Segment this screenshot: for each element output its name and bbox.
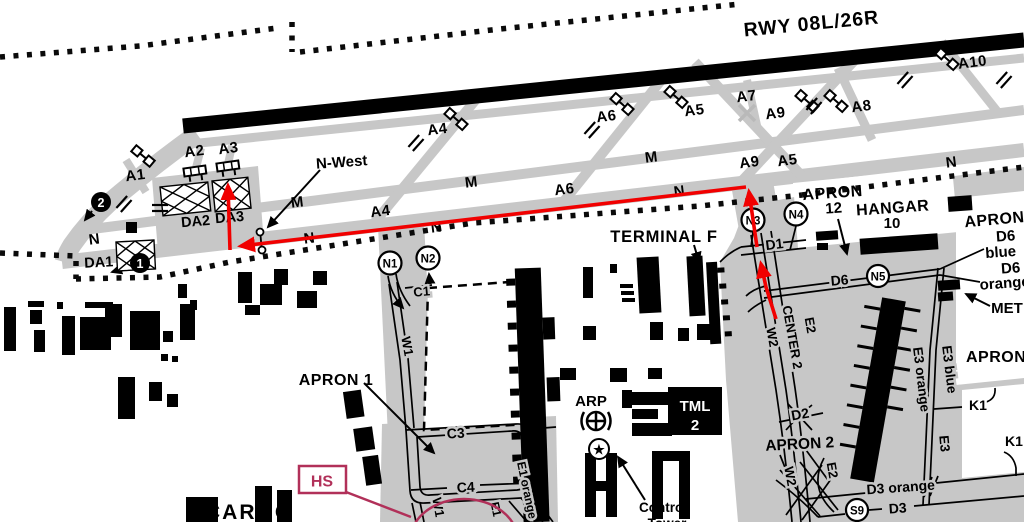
building xyxy=(362,455,382,486)
building xyxy=(260,284,282,305)
taxiway-label-n: N xyxy=(945,153,958,171)
taxiway-label-a1: A1 xyxy=(124,166,146,185)
taxiway-label-n: N xyxy=(88,230,101,248)
building xyxy=(610,368,627,382)
building xyxy=(161,354,168,361)
building xyxy=(583,267,593,298)
hold-bars-icon xyxy=(996,72,1011,88)
building xyxy=(297,291,317,308)
runway-label: RWY 08L/26R xyxy=(743,7,880,42)
building xyxy=(245,305,260,315)
node-n2: N2 xyxy=(417,247,440,270)
building xyxy=(30,310,42,324)
svg-text:1: 1 xyxy=(137,257,144,271)
control-tower-pointer xyxy=(618,457,645,500)
building xyxy=(948,195,973,212)
taxiway-label-a4-south: A4 xyxy=(369,202,391,221)
taxiway-label-a3: A3 xyxy=(217,139,239,158)
n-west-label: N-West xyxy=(315,152,367,173)
building xyxy=(697,324,711,340)
chart-canvas: N1 N2 N3 N4 N5 S9 1 2 ★ RWY 08L/26R A10 … xyxy=(0,0,1024,522)
building xyxy=(62,316,75,355)
node-n1: N1 xyxy=(379,252,402,275)
d6-orange-word: orange xyxy=(979,273,1024,293)
building xyxy=(620,284,633,288)
met-label: MET xyxy=(991,300,1023,317)
taxiway-label-a7: A7 xyxy=(735,87,757,106)
taxiway-label-a5-south: A5 xyxy=(776,151,798,170)
control-tower-label-2: Tower xyxy=(648,516,687,522)
svg-text:N1: N1 xyxy=(383,259,398,271)
airport-taxi-chart: N1 N2 N3 N4 N5 S9 1 2 ★ RWY 08L/26R A10 … xyxy=(0,0,1024,522)
taxiway-label-a4: A4 xyxy=(426,120,448,139)
apron-right-label: APRON xyxy=(966,349,1024,366)
building xyxy=(163,331,173,342)
building xyxy=(585,481,617,491)
apron-1-label: APRON 1 xyxy=(299,372,374,389)
taxiway-label-a10: A10 xyxy=(957,52,988,72)
building xyxy=(313,271,327,285)
taxiway-label-a6: A6 xyxy=(595,107,617,126)
tml-2-number: 2 xyxy=(691,417,699,434)
d1-label: D1 xyxy=(765,235,785,253)
deice-pad-da3-icon xyxy=(212,177,251,212)
building xyxy=(817,243,828,250)
taxiway-label-m: M xyxy=(464,173,479,191)
taxiway-label-m: M xyxy=(290,193,305,211)
k1-label: K1 xyxy=(969,397,987,413)
building xyxy=(650,322,663,340)
building xyxy=(560,368,576,380)
building xyxy=(149,382,162,401)
note-1-badge: 1 xyxy=(130,253,150,273)
building xyxy=(118,377,135,419)
terminal-f-building xyxy=(686,256,705,317)
e2-label: E2 xyxy=(824,461,842,479)
building xyxy=(4,307,16,351)
taxiway-label-m: M xyxy=(644,148,659,166)
building xyxy=(816,230,839,241)
apron-12-number: 12 xyxy=(825,199,843,217)
hold-position-icon xyxy=(824,90,847,112)
building xyxy=(167,394,178,407)
building xyxy=(621,291,634,295)
c3-label: C3 xyxy=(446,425,465,442)
building xyxy=(652,451,690,461)
building xyxy=(343,390,365,419)
building xyxy=(238,272,252,303)
building xyxy=(632,409,658,419)
svg-text:N2: N2 xyxy=(421,254,436,266)
control-tower-icon: ★ xyxy=(589,439,609,459)
c4-label: C4 xyxy=(456,479,475,496)
building xyxy=(632,392,672,405)
svg-text:2: 2 xyxy=(98,196,105,210)
taxiway-label-a9-south: A9 xyxy=(738,153,760,172)
building xyxy=(28,301,44,307)
svg-text:N4: N4 xyxy=(789,210,804,222)
c1-label: C1 xyxy=(413,283,431,299)
building xyxy=(57,302,63,309)
node-s9: S9 xyxy=(846,499,868,521)
building xyxy=(622,298,635,302)
hold-bars-icon xyxy=(408,135,423,151)
building xyxy=(678,328,689,341)
e2-label: E2 xyxy=(802,316,820,334)
building xyxy=(637,256,662,313)
arp-icon xyxy=(582,412,611,430)
building xyxy=(190,300,197,310)
taxiway-label-a5: A5 xyxy=(683,101,705,120)
building xyxy=(610,264,617,273)
tml-2-label: TML xyxy=(680,398,711,415)
building xyxy=(274,269,288,285)
node-n4: N4 xyxy=(785,203,808,226)
arp-label: ARP xyxy=(575,393,607,410)
taxiway-label-a8: A8 xyxy=(850,97,872,116)
taxiway-label-a2: A2 xyxy=(183,142,205,161)
met-building xyxy=(938,279,961,291)
control-tower-label-1: Control xyxy=(639,500,687,515)
d3-label: D3 xyxy=(888,499,907,516)
svg-text:S9: S9 xyxy=(850,506,864,518)
node-n5: N5 xyxy=(867,265,889,287)
met-building xyxy=(938,291,954,301)
building xyxy=(172,356,178,362)
building xyxy=(583,326,596,340)
hotspot-label: HS xyxy=(311,474,334,491)
building xyxy=(105,304,122,337)
apron-2-label: APRON 2 xyxy=(765,434,835,455)
d6-label: D6 xyxy=(830,271,849,289)
building xyxy=(648,368,662,379)
svg-text:★: ★ xyxy=(593,442,605,457)
deice-label-da1: DA1 xyxy=(84,254,114,271)
taxiway-label-n: N xyxy=(673,182,686,200)
d2-label: D2 xyxy=(790,405,811,424)
hangar-number: 10 xyxy=(884,215,901,232)
terminal-f-label: TERMINAL F xyxy=(610,228,718,246)
building xyxy=(632,423,672,436)
route-segment-to-a3 xyxy=(228,186,230,250)
k1-label-2: K1 xyxy=(1005,433,1023,449)
building xyxy=(178,284,187,298)
e3-label: E3 xyxy=(936,435,952,453)
svg-text:N5: N5 xyxy=(871,272,886,284)
deice-label-da2: DA2 xyxy=(181,213,211,231)
building xyxy=(130,311,160,350)
building xyxy=(353,426,375,451)
taxiway-label-a6-south: A6 xyxy=(553,180,575,199)
building xyxy=(34,330,45,352)
building xyxy=(126,222,137,233)
cargo-label: CARGO xyxy=(205,501,293,522)
building xyxy=(622,390,632,408)
note-2-badge: 2 xyxy=(91,192,111,212)
taxiway-label-a9: A9 xyxy=(764,104,786,123)
